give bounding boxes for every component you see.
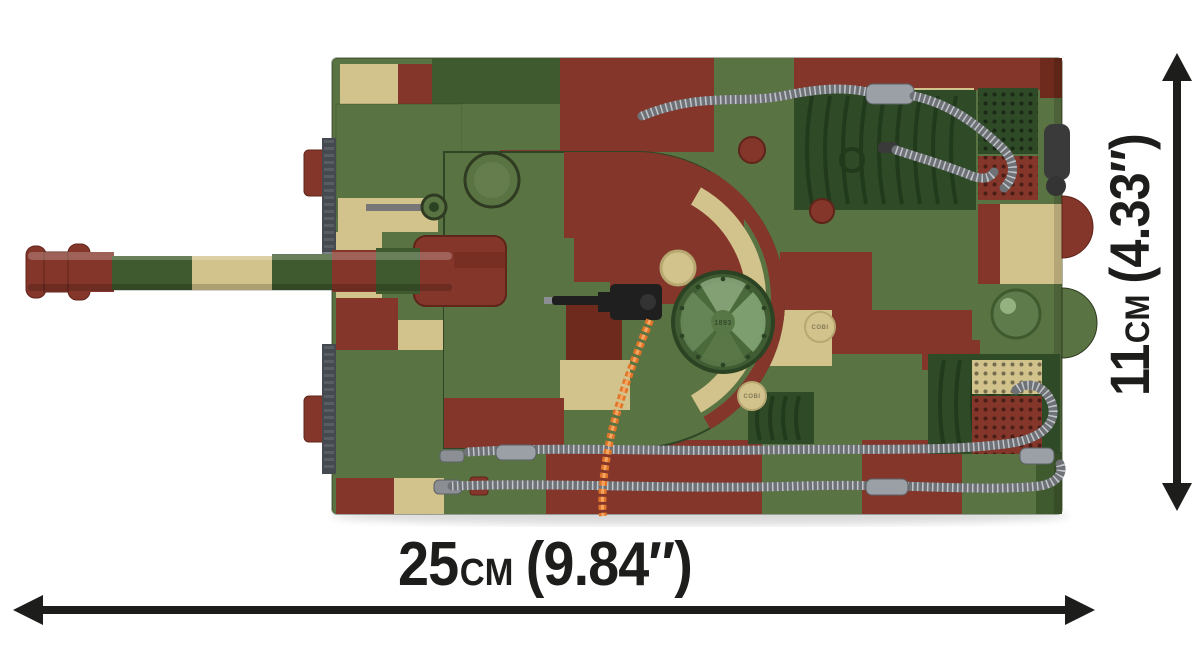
hatch-embossed-text: 1893 (714, 320, 732, 327)
round-stud (661, 251, 695, 285)
height-value: 11 (1098, 344, 1161, 395)
width-dimension-arrow (42, 606, 1066, 614)
height-dimension-label: 11cm(4.33″) (1090, 58, 1170, 472)
width-unit: cm (460, 551, 514, 594)
periscope-dome (992, 290, 1040, 338)
height-dimension-arrow (1173, 81, 1181, 483)
width-value: 25 (398, 530, 458, 599)
height-unit: cm (1119, 295, 1157, 344)
gun-barrel (26, 244, 454, 300)
width-dimension-label: 25cm(9.84″) (320, 529, 770, 600)
height-imperial: (4.33″) (1098, 134, 1161, 284)
product-dimensions-figure: 1893 COBI COBI (0, 0, 1200, 649)
stud-embossed-text: COBI (812, 325, 829, 331)
commander-hatch: 1893 (673, 272, 773, 372)
width-imperial: (9.84″) (526, 530, 692, 599)
stud-embossed-text: COBI (744, 394, 761, 400)
